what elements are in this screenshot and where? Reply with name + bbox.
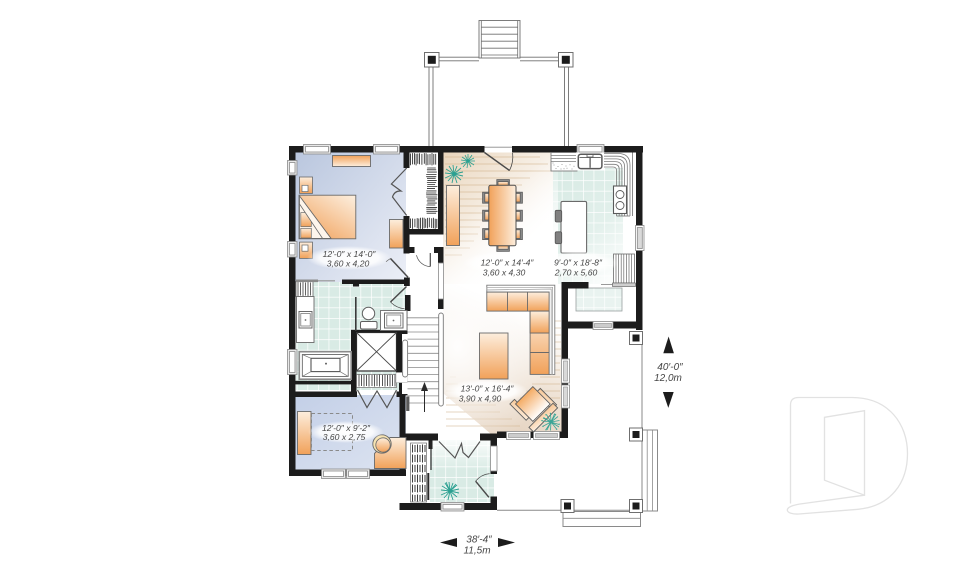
- svg-text:38′-4″: 38′-4″: [466, 535, 492, 546]
- svg-text:3,90 x 4,90: 3,90 x 4,90: [459, 394, 502, 404]
- svg-text:40′-0″: 40′-0″: [657, 362, 683, 373]
- svg-text:9′-0″ x 18′-8″: 9′-0″ x 18′-8″: [554, 258, 603, 268]
- svg-text:11,5m: 11,5m: [463, 546, 490, 557]
- svg-text:3,60 x 2,75: 3,60 x 2,75: [323, 432, 366, 442]
- svg-text:13′-0″ x 16′-4″: 13′-0″ x 16′-4″: [461, 384, 515, 394]
- svg-text:3,60 x 4,20: 3,60 x 4,20: [327, 259, 370, 269]
- svg-text:12′-0″ x 14′-4″: 12′-0″ x 14′-4″: [481, 258, 535, 268]
- svg-text:2,70 x 5,60: 2,70 x 5,60: [554, 268, 598, 278]
- svg-text:12,0m: 12,0m: [654, 373, 682, 384]
- svg-text:12′-0″ x 14′-0″: 12′-0″ x 14′-0″: [323, 249, 377, 259]
- svg-text:3,60 x 4,30: 3,60 x 4,30: [483, 268, 526, 278]
